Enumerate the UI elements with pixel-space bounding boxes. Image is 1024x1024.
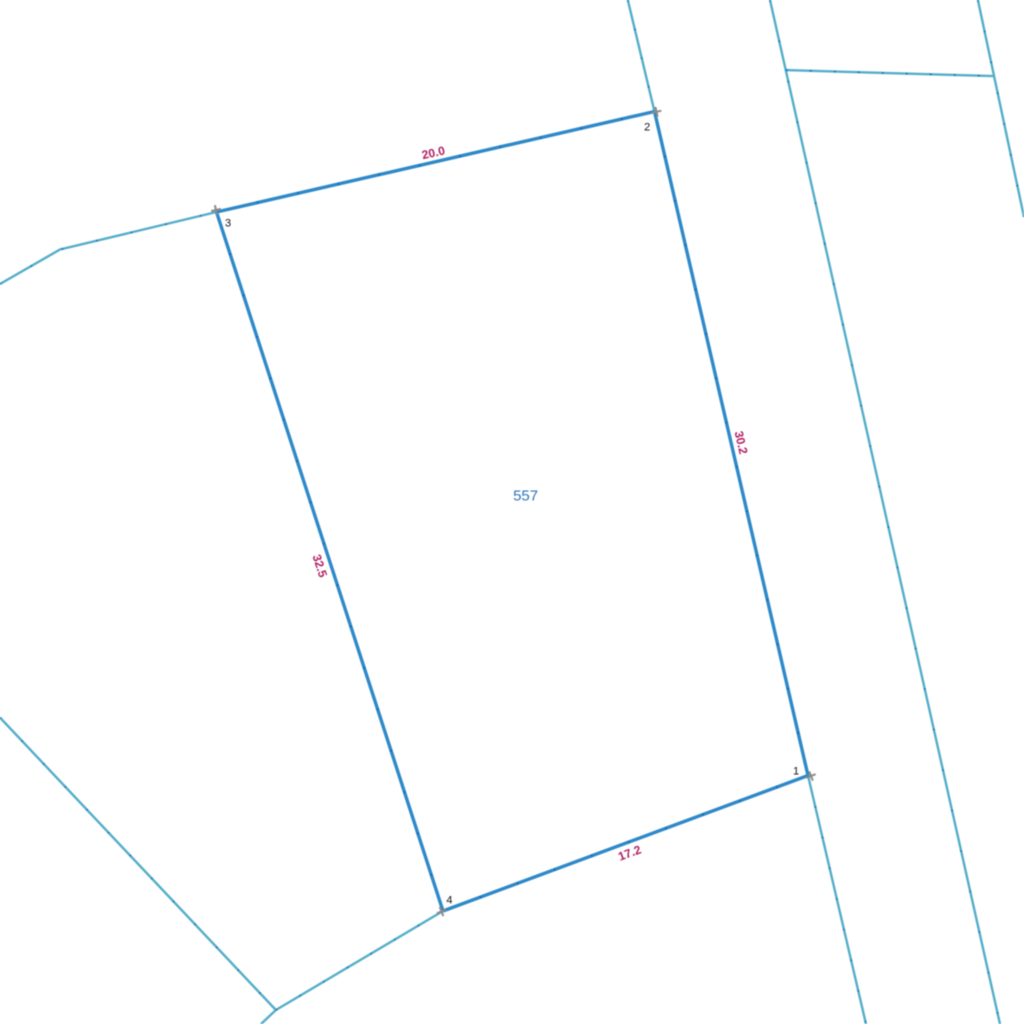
svg-text:4: 4 xyxy=(446,895,452,907)
svg-text:3: 3 xyxy=(225,218,231,230)
svg-text:2: 2 xyxy=(644,122,650,134)
svg-text:557: 557 xyxy=(513,488,538,505)
svg-text:1: 1 xyxy=(793,766,799,778)
